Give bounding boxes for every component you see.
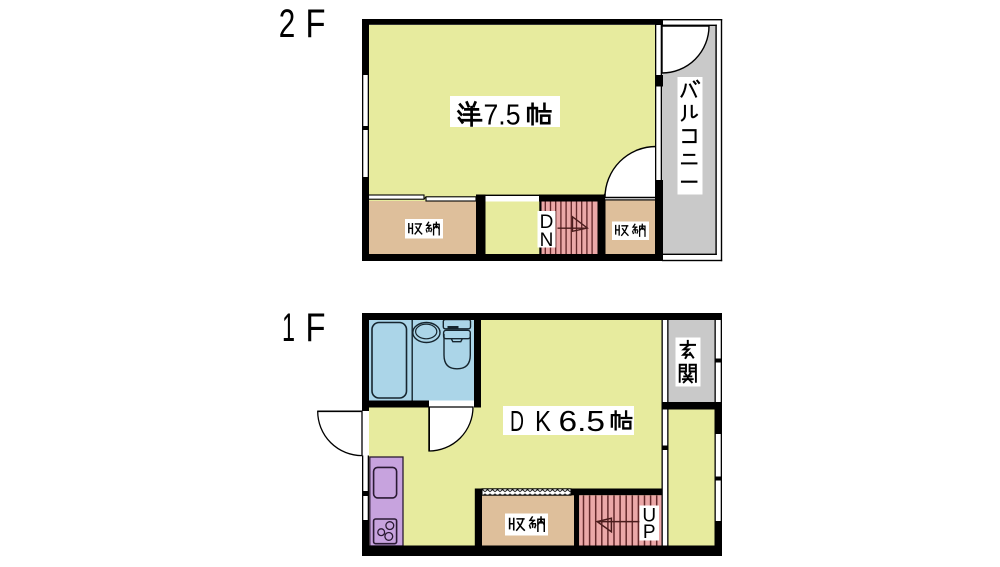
svg-text:P: P bbox=[643, 522, 656, 543]
svg-text:1: 1 bbox=[282, 306, 295, 350]
svg-text:6.5: 6.5 bbox=[559, 406, 606, 438]
svg-text:N: N bbox=[540, 230, 554, 251]
svg-text:D: D bbox=[510, 406, 524, 438]
svg-text:7.5: 7.5 bbox=[484, 100, 521, 132]
svg-text:F: F bbox=[306, 306, 326, 350]
svg-text:F: F bbox=[306, 2, 326, 46]
svg-text:K: K bbox=[535, 406, 552, 438]
svg-text:2: 2 bbox=[279, 2, 296, 46]
